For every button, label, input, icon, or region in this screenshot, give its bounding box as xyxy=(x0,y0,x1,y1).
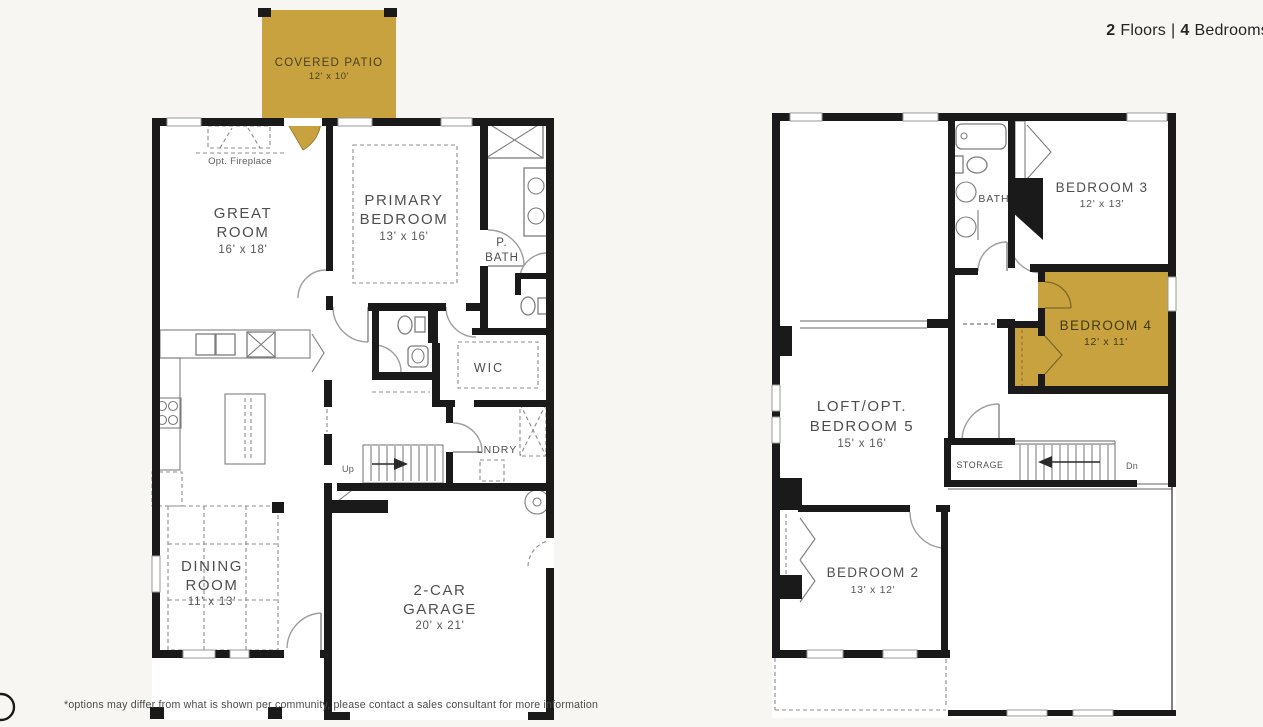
primary-bedroom-label-1: PRIMARY xyxy=(364,192,443,209)
wic-label: WIC xyxy=(474,361,504,375)
garage-label-2: GARAGE xyxy=(403,601,477,618)
floor1-plan: COVERED PATIO 12' x 10' Opt. Fireplace G… xyxy=(150,8,554,720)
bedroom2-label: BEDROOM 2 xyxy=(827,565,920,580)
powder-sink xyxy=(408,346,428,367)
stairs-down-label: Dn xyxy=(1126,461,1138,471)
storage-label: STORAGE xyxy=(956,460,1003,470)
kitchen-sink xyxy=(196,334,215,355)
bathtub xyxy=(956,124,1006,149)
laundry-label: LNDRY xyxy=(477,444,517,456)
covered-patio-label: COVERED PATIO xyxy=(275,57,383,69)
toilet xyxy=(954,156,963,173)
primary-bath-label-2: BATH xyxy=(485,252,519,264)
bedroom3-label: BEDROOM 3 xyxy=(1056,180,1149,195)
dining-room-dims: 11' x 13' xyxy=(188,596,236,608)
garage-dims: 20' x 21' xyxy=(415,620,464,632)
bedroom4-dims: 12' x 11' xyxy=(1084,336,1128,348)
loft-dims: 15' x 16' xyxy=(837,438,886,450)
bedroom4-label: BEDROOM 4 xyxy=(1060,318,1153,333)
opt-fireplace-label: Opt. Fireplace xyxy=(208,156,272,167)
covered-patio-dims: 12' x 10' xyxy=(309,71,349,82)
column-post xyxy=(272,502,284,513)
primary-bath-sinks xyxy=(524,168,548,236)
shower xyxy=(486,122,543,158)
dining-room-label-1: DINING xyxy=(181,558,243,575)
loft-label-2: BEDROOM 5 xyxy=(810,418,914,435)
floorplan-canvas: COVERED PATIO 12' x 10' Opt. Fireplace G… xyxy=(0,0,1263,727)
floor2-plan: BATH BEDROOM 3 12' x 13' BEDROOM 4 12' x… xyxy=(772,113,1176,718)
great-room-dims: 16' x 18' xyxy=(218,244,267,256)
primary-bedroom-dims: 13' x 16' xyxy=(379,231,428,243)
garage-label-1: 2-CAR xyxy=(413,582,466,599)
dining-room-label-2: ROOM xyxy=(185,577,238,594)
bedroom2-dims: 13' x 12' xyxy=(851,584,896,596)
primary-bath-label-1: P. xyxy=(496,237,507,249)
primary-bedroom-label-2: BEDROOM xyxy=(360,211,449,228)
bedroom3-dims: 12' x 13' xyxy=(1080,198,1125,210)
logo-circle xyxy=(0,694,14,720)
great-room-label-1: GREAT xyxy=(214,205,273,222)
stairs-up-label: Up xyxy=(342,464,354,474)
loft-label-1: LOFT/OPT. xyxy=(817,398,907,415)
disclaimer-text: *options may differ from what is shown p… xyxy=(64,699,598,711)
great-room-label-2: ROOM xyxy=(216,224,269,241)
bath-label: BATH xyxy=(978,193,1009,205)
